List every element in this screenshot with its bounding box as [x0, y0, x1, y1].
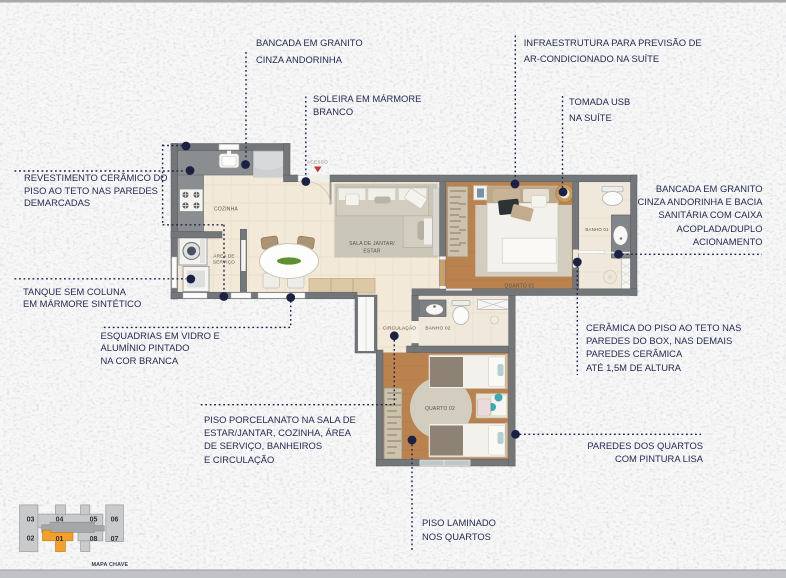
svg-text:QUARTO 01: QUARTO 01: [505, 284, 535, 290]
svg-text:BANHO 02: BANHO 02: [425, 325, 450, 331]
svg-text:01: 01: [56, 536, 64, 543]
svg-text:QUARTO 02: QUARTO 02: [425, 406, 455, 412]
svg-text:04: 04: [56, 517, 64, 524]
svg-text:02: 02: [27, 536, 35, 543]
svg-text:BANHO 01: BANHO 01: [585, 227, 609, 232]
svg-text:SALA DE JANTAR/: SALA DE JANTAR/: [349, 241, 395, 247]
svg-text:08: 08: [90, 536, 98, 543]
svg-text:MAPA CHAVE: MAPA CHAVE: [92, 562, 129, 568]
svg-text:06: 06: [111, 517, 119, 524]
svg-text:03: 03: [27, 517, 35, 524]
svg-text:07: 07: [111, 536, 119, 543]
svg-text:COZINHA: COZINHA: [214, 207, 238, 213]
svg-text:CIRCULAÇÃO: CIRCULAÇÃO: [383, 324, 417, 331]
svg-text:ESTAR: ESTAR: [363, 248, 380, 254]
svg-text:05: 05: [90, 517, 98, 524]
svg-text:ACESSO: ACESSO: [307, 160, 328, 165]
